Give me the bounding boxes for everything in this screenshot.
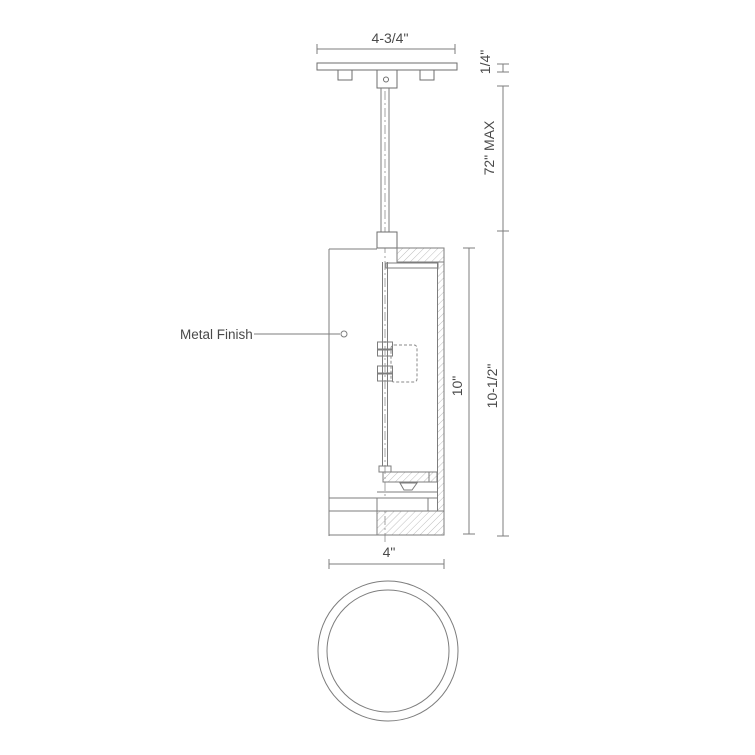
leader-dot (341, 331, 347, 337)
bottom-recess (377, 498, 428, 511)
bottom-view-outer-ring (318, 581, 458, 721)
stem-connector-block (377, 232, 397, 248)
stem (377, 88, 397, 248)
dim-overall-height-label: 10-1/2" (484, 364, 500, 409)
dim-max-drop-label: 72" MAX (481, 120, 497, 175)
top-cap-section (397, 248, 444, 262)
dim-canopy-width: 4-3/4" (317, 30, 455, 54)
metal-finish-label: Metal Finish (180, 327, 253, 342)
socket-assembly (378, 342, 418, 382)
dim-body-height-label: 10" (449, 376, 465, 397)
metal-finish-callout: Metal Finish (180, 327, 347, 342)
dim-body-height: 10" (449, 248, 475, 534)
dim-canopy-width-label: 4-3/4" (372, 30, 409, 46)
bottom-block-section (377, 511, 444, 535)
drawing-canvas: 4-3/4" 1/4" 72" MAX 10-1/2" (0, 0, 755, 755)
inner-cap-plate (386, 263, 438, 268)
dim-body-diameter: 4" (329, 544, 444, 569)
driver-box-hidden-outline (391, 345, 417, 382)
dim-canopy-thickness: 1/4" (477, 50, 509, 74)
canopy (317, 63, 457, 88)
canopy-plate (317, 63, 457, 70)
right-wall-section (438, 262, 445, 511)
canopy-mount-tab-left (338, 70, 352, 80)
dim-overall-height: 10-1/2" (484, 231, 509, 536)
body-section (329, 248, 444, 536)
bottom-view-inner-ring (327, 590, 449, 712)
dim-body-diameter-label: 4" (383, 544, 396, 560)
led-lens (400, 483, 417, 490)
led-plate-assembly (329, 466, 437, 498)
canopy-mount-tab-right (420, 70, 434, 80)
bottom-trim (329, 498, 444, 535)
bottom-view (318, 581, 458, 721)
technical-drawing: 4-3/4" 1/4" 72" MAX 10-1/2" (0, 0, 755, 755)
canopy-stem-bracket (377, 70, 397, 88)
dim-canopy-thickness-label: 1/4" (477, 50, 493, 74)
dim-max-drop: 72" MAX (481, 86, 509, 231)
